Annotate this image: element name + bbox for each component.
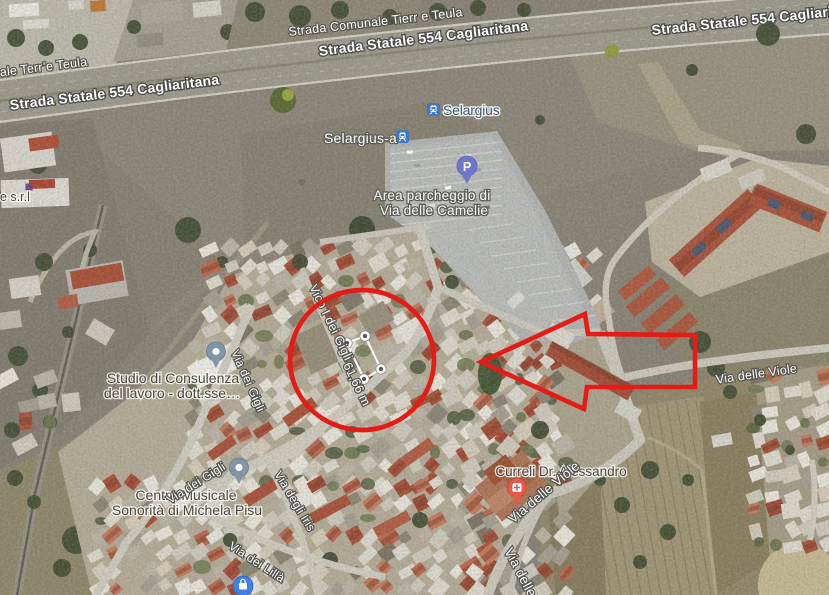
svg-text:Studio di Consulenza: Studio di Consulenza xyxy=(107,370,240,386)
svg-text:Area parcheggio di: Area parcheggio di xyxy=(374,188,491,203)
svg-text:Selargius: Selargius xyxy=(443,102,500,118)
svg-text:P: P xyxy=(463,160,471,174)
svg-text:Selargius-a: Selargius-a xyxy=(324,130,397,146)
svg-text:e s.r.l: e s.r.l xyxy=(0,190,30,204)
svg-text:del lavoro - dott.sse…: del lavoro - dott.sse… xyxy=(104,385,240,401)
svg-text:Sonorità di Michela Pisu: Sonorità di Michela Pisu xyxy=(112,502,262,518)
svg-text:Via delle Camelie: Via delle Camelie xyxy=(380,203,488,218)
